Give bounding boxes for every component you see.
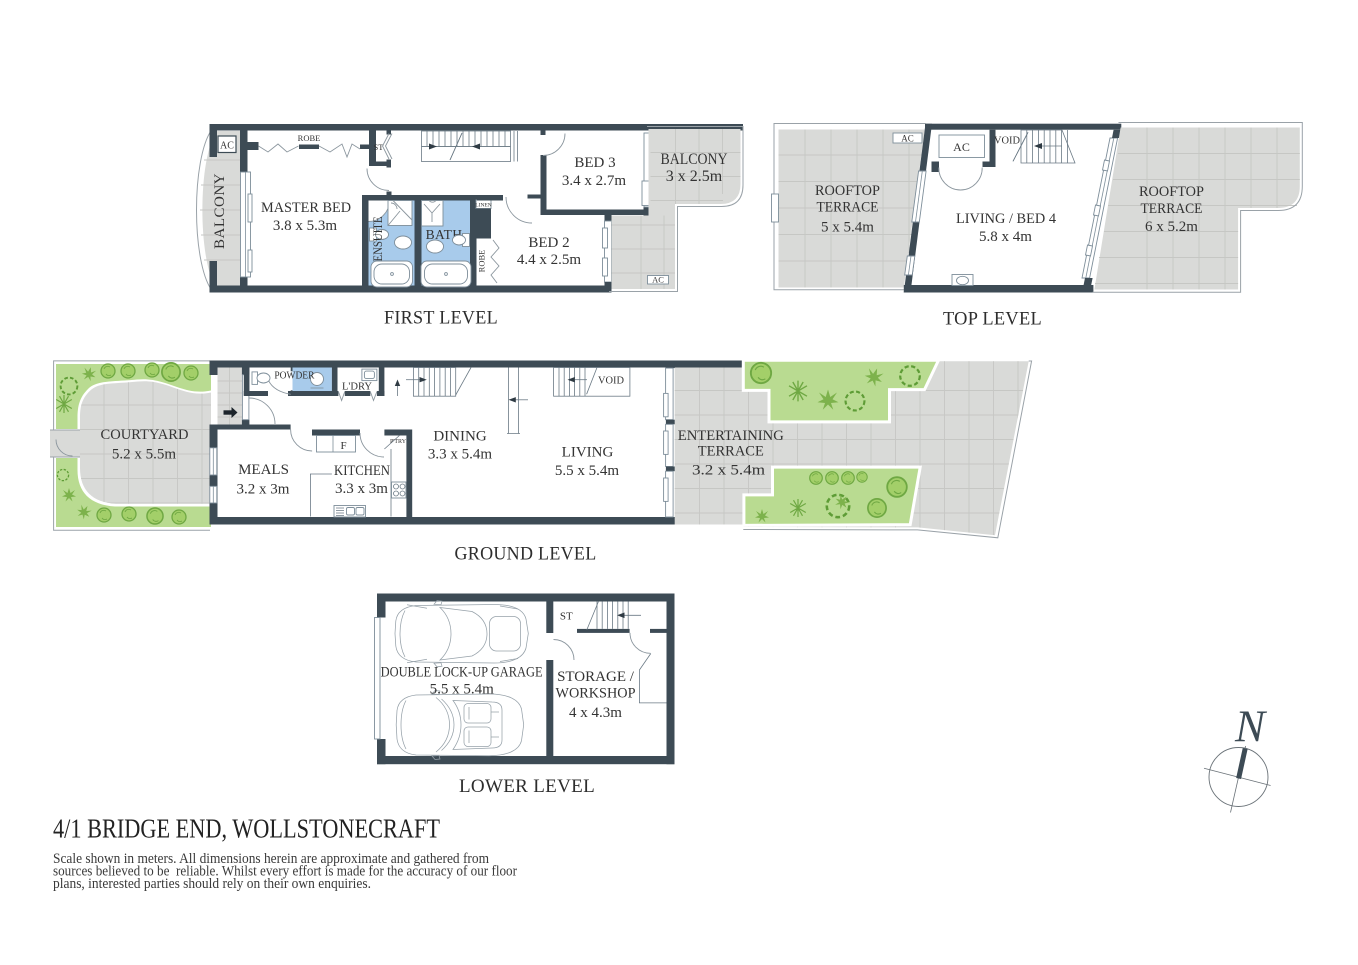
- svg-text:plans, interested parties shou: plans, interested parties should rely on…: [53, 876, 371, 892]
- svg-text:AC: AC: [220, 141, 234, 152]
- svg-text:KITCHEN: KITCHEN: [334, 463, 390, 479]
- svg-text:VOID: VOID: [994, 135, 1020, 147]
- svg-text:GROUND LEVEL: GROUND LEVEL: [455, 544, 597, 565]
- svg-text:5.2 x 5.5m: 5.2 x 5.5m: [112, 447, 177, 463]
- svg-text:POWDER: POWDER: [274, 371, 314, 382]
- svg-text:ST: ST: [560, 611, 573, 623]
- svg-text:6 x 5.2m: 6 x 5.2m: [1145, 219, 1198, 235]
- svg-text:3.2 x 3m: 3.2 x 3m: [237, 482, 290, 498]
- svg-text:P'TRY: P'TRY: [390, 439, 407, 445]
- svg-text:3.4 x 2.7m: 3.4 x 2.7m: [562, 173, 627, 189]
- svg-text:3.2 x 5.4m: 3.2 x 5.4m: [692, 463, 765, 479]
- svg-text:L'DRY: L'DRY: [342, 381, 372, 393]
- svg-text:AC: AC: [652, 275, 664, 285]
- svg-text:N: N: [1234, 702, 1268, 752]
- svg-text:ROOFTOP: ROOFTOP: [1139, 184, 1204, 200]
- svg-text:F: F: [340, 440, 346, 452]
- svg-text:BALCONY: BALCONY: [212, 173, 228, 249]
- svg-text:4.4 x 2.5m: 4.4 x 2.5m: [517, 252, 582, 268]
- svg-text:STORAGE /: STORAGE /: [557, 669, 635, 685]
- svg-text:FIRST LEVEL: FIRST LEVEL: [384, 308, 498, 329]
- svg-text:LIVING / BED 4: LIVING / BED 4: [956, 211, 1056, 227]
- svg-text:5 x 5.4m: 5 x 5.4m: [821, 220, 874, 236]
- svg-text:TERRACE: TERRACE: [817, 200, 879, 216]
- svg-text:LINEN: LINEN: [475, 202, 492, 208]
- svg-text:4 x 4.3m: 4 x 4.3m: [569, 705, 622, 721]
- svg-text:DINING: DINING: [433, 429, 486, 445]
- svg-text:ROBE: ROBE: [298, 133, 321, 143]
- svg-text:DOUBLE LOCK-UP GARAGE: DOUBLE LOCK-UP GARAGE: [381, 665, 543, 681]
- svg-text:ROOFTOP: ROOFTOP: [815, 183, 880, 199]
- svg-text:TOP LEVEL: TOP LEVEL: [943, 309, 1042, 330]
- svg-text:ROBE: ROBE: [477, 250, 487, 273]
- svg-text:4/1 BRIDGE END, WOLLSTONECRAFT: 4/1 BRIDGE END, WOLLSTONECRAFT: [53, 813, 440, 844]
- svg-text:ENSUITE: ENSUITE: [371, 216, 385, 261]
- svg-text:AC: AC: [901, 133, 914, 143]
- svg-text:3.3 x 3m: 3.3 x 3m: [335, 481, 388, 497]
- svg-text:BED 3: BED 3: [574, 155, 615, 171]
- svg-text:MASTER BED: MASTER BED: [261, 200, 351, 216]
- svg-text:LIVING: LIVING: [562, 445, 614, 461]
- svg-text:5.5 x 5.4m: 5.5 x 5.4m: [430, 682, 495, 698]
- svg-text:TERRACE: TERRACE: [698, 444, 764, 460]
- svg-text:BED 2: BED 2: [528, 235, 569, 251]
- svg-text:3.8 x 5.3m: 3.8 x 5.3m: [273, 218, 338, 234]
- svg-text:3 x 2.5m: 3 x 2.5m: [666, 168, 723, 185]
- svg-text:MEALS: MEALS: [238, 462, 289, 478]
- svg-text:WORKSHOP: WORKSHOP: [556, 686, 636, 702]
- svg-text:AC: AC: [953, 140, 970, 154]
- svg-text:COURTYARD: COURTYARD: [101, 427, 189, 443]
- svg-text:5.5 x 5.4m: 5.5 x 5.4m: [555, 463, 620, 479]
- svg-text:3.3 x 5.4m: 3.3 x 5.4m: [428, 447, 493, 463]
- svg-text:5.8 x 4m: 5.8 x 4m: [979, 229, 1032, 245]
- svg-text:VOID: VOID: [598, 375, 624, 387]
- svg-text:LOWER LEVEL: LOWER LEVEL: [459, 776, 595, 797]
- svg-text:BALCONY: BALCONY: [661, 151, 728, 168]
- svg-text:TERRACE: TERRACE: [1141, 201, 1203, 217]
- svg-text:ENTERTAINING: ENTERTAINING: [678, 428, 784, 444]
